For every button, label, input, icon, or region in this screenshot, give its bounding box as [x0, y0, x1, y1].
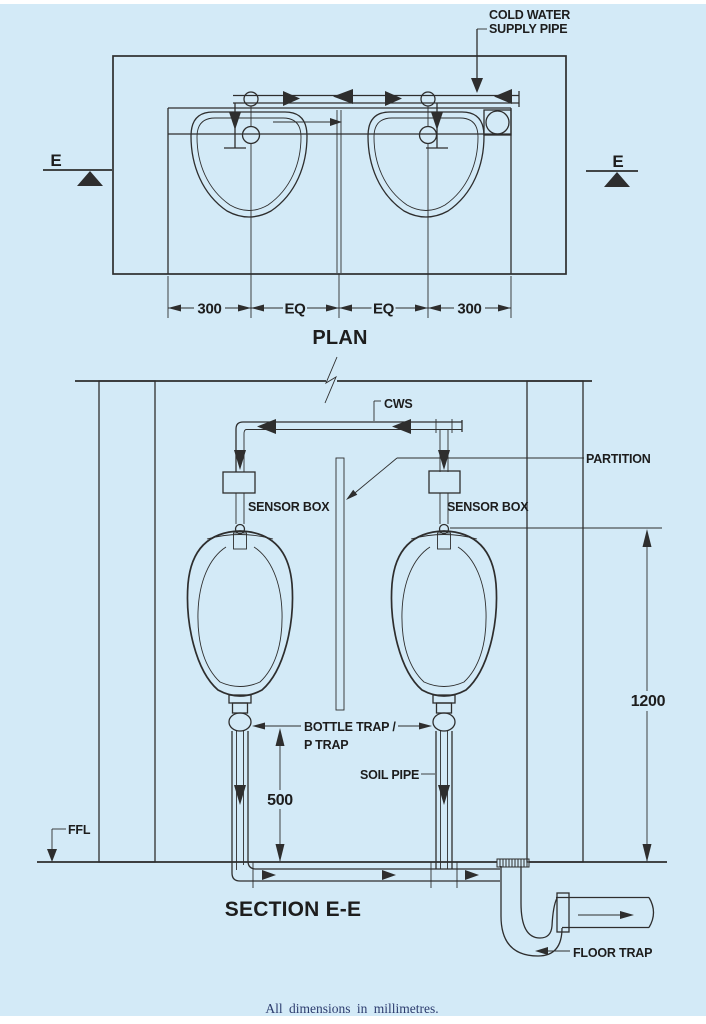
cold-water-label-line2: SUPPLY PIPE	[489, 22, 567, 36]
dim-eq-1: EQ	[284, 301, 306, 318]
sensor-box-left-label: SENSOR BOX	[248, 500, 330, 514]
dim-300-right: 300	[457, 301, 481, 318]
ffl-label: FFL	[68, 823, 91, 837]
urinal-installation-drawing: COLD WATER SUPPLY PIPE E E	[0, 0, 706, 1024]
dim-500-label: 500	[267, 792, 293, 809]
cold-water-label-line1: COLD WATER	[489, 8, 570, 22]
plan-title: PLAN	[312, 327, 367, 349]
cws-label: CWS	[384, 397, 413, 411]
dim-1200-label: 1200	[631, 693, 666, 710]
section-marker-left-label: E	[50, 151, 61, 170]
drawing-sheet: COLD WATER SUPPLY PIPE E E	[0, 0, 706, 1024]
sensor-box-right-label: SENSOR BOX	[447, 500, 529, 514]
page-background	[0, 4, 706, 1016]
soil-pipe-label: SOIL PIPE	[360, 768, 419, 782]
footer-note: All dimensions in millimetres.	[265, 1001, 438, 1016]
dim-300-left: 300	[197, 301, 221, 318]
floor-trap-label: FLOOR TRAP	[573, 946, 652, 960]
bottle-trap-label-line2: P TRAP	[304, 738, 348, 752]
bottle-trap-label-line1: BOTTLE TRAP /	[304, 720, 396, 734]
partition-label: PARTITION	[586, 452, 651, 466]
dim-eq-2: EQ	[373, 301, 395, 318]
section-marker-right-label: E	[612, 152, 623, 171]
section-title: SECTION E-E	[225, 898, 361, 921]
